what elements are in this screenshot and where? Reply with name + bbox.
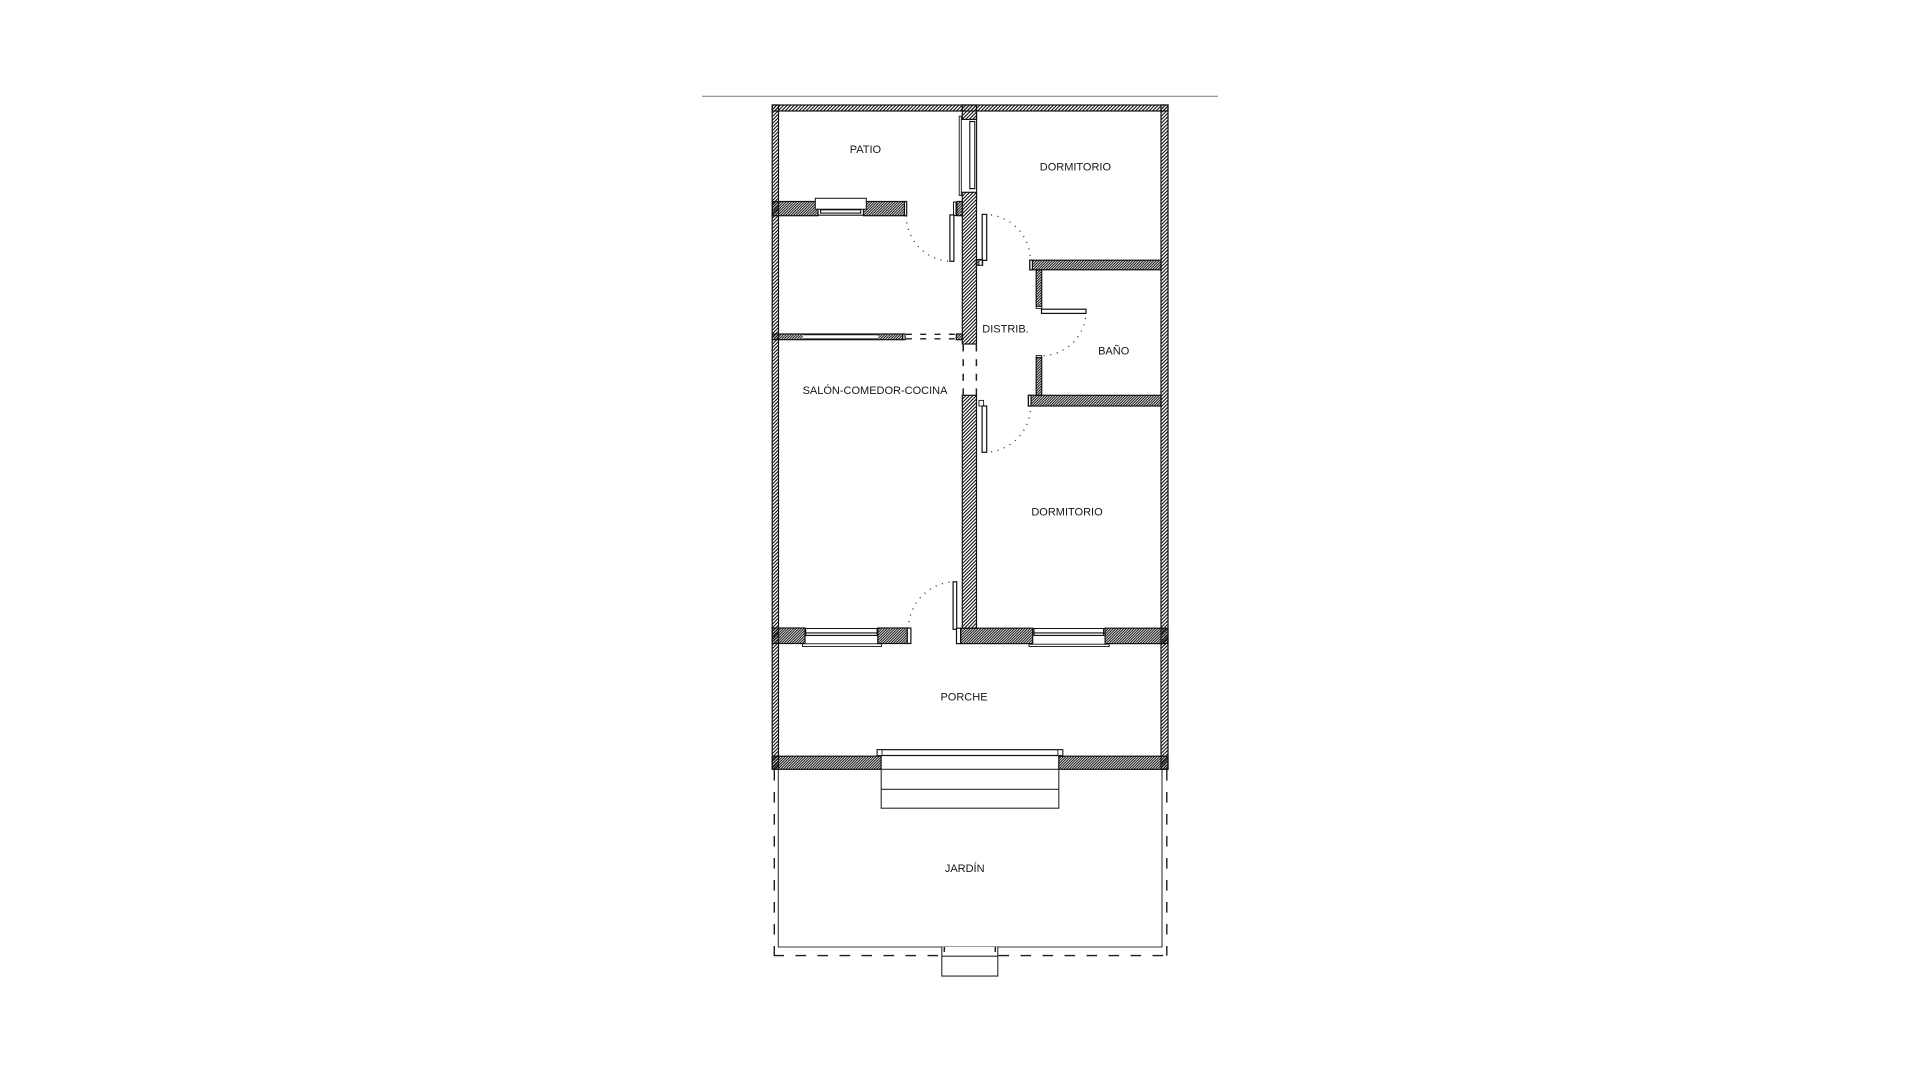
svg-text:DISTRIB.: DISTRIB. — [982, 323, 1028, 335]
svg-text:PORCHE: PORCHE — [940, 691, 987, 703]
svg-text:PATIO: PATIO — [850, 144, 882, 156]
svg-text:DORMITORIO: DORMITORIO — [1040, 162, 1112, 174]
svg-text:BAÑO: BAÑO — [1098, 345, 1130, 358]
svg-text:JARDÍN: JARDÍN — [945, 862, 985, 875]
svg-text:DORMITORIO: DORMITORIO — [1031, 506, 1103, 518]
svg-text:SALÓN-COMEDOR-COCINA: SALÓN-COMEDOR-COCINA — [803, 384, 949, 397]
